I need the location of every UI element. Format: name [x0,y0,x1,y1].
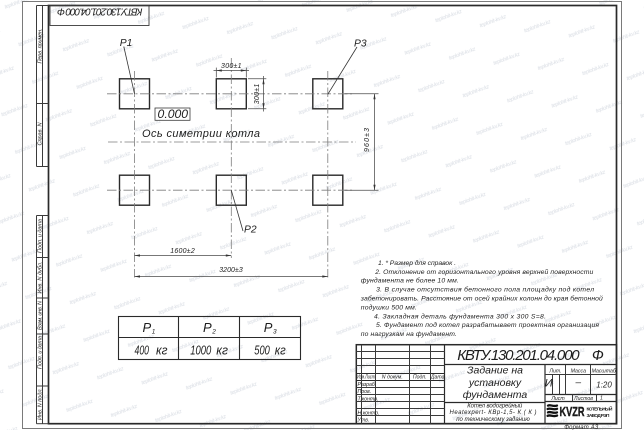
svg-text:Ф: Ф [57,5,65,16]
svg-text:кг: кг [216,343,228,358]
svg-text:1:20: 1:20 [596,381,612,390]
svg-text:P1: P1 [120,38,133,49]
svg-text:Котел водогрейный: Котел водогрейный [467,402,523,409]
svg-text:Подп.: Подп. [413,374,427,380]
svg-text:Подп. и дата: Подп. и дата [38,336,44,369]
svg-text:300±1: 300±1 [221,63,242,70]
svg-text:1: 1 [600,396,603,402]
svg-text:1. * Размер для справок .: 1. * Размер для справок . [378,259,456,267]
svg-text:Инв. N дубл.: Инв. N дубл. [38,262,44,294]
svg-text:Пров.: Пров. [358,389,372,395]
svg-text:3200±3: 3200±3 [219,267,243,274]
svg-text:500: 500 [254,343,270,358]
svg-text:КВТУ.130.201.04.000: КВТУ.130.201.04.000 [65,5,142,16]
svg-text:2. Отклонение от горизонтально: 2. Отклонение от горизонтального уровня … [374,268,593,276]
svg-text:–: – [575,378,582,389]
svg-text:P2: P2 [244,224,257,235]
svg-text:1000: 1000 [190,343,212,358]
svg-text:2: 2 [211,329,216,336]
svg-text:0.000: 0.000 [158,107,189,121]
svg-text:300±1: 300±1 [254,84,261,105]
svg-text:Справ. N: Справ. N [38,122,44,146]
svg-text:Н.контр.: Н.контр. [358,411,380,417]
svg-text:Дата: Дата [430,374,445,380]
svg-text:Изм.Лист: Изм.Лист [357,374,375,380]
svg-text:400: 400 [135,343,150,358]
svg-text:5. Фундамент под котел разраба: 5. Фундамент под котел разрабатывает про… [376,321,599,329]
svg-text:Ось симетрии котла: Ось симетрии котла [142,128,260,140]
svg-text:3: 3 [273,329,277,336]
svg-text:N докум.: N докум. [382,374,403,380]
svg-text:КВТУ.130.201.04.000: КВТУ.130.201.04.000 [457,347,580,364]
svg-text:P: P [143,320,152,335]
svg-text:кг: кг [156,343,168,358]
svg-text:Формат А3: Формат А3 [564,425,599,430]
svg-text:Лит.: Лит. [548,368,561,374]
svg-text:забетонировать. Расстояние от: забетонировать. Расстояние от осей крайн… [360,295,603,303]
svg-text:KVZR: KVZR [560,405,585,419]
svg-text:Инв. N подл.: Инв. N подл. [38,388,44,420]
svg-text:P: P [203,320,212,335]
svg-text:3. В случае отсутствия бетонно: 3. В случае отсутствия бетонного пола пл… [376,286,594,294]
svg-text:И: И [545,378,553,390]
svg-text:подушки 500 мм.: подушки 500 мм. [361,303,417,311]
svg-text:Heatexpert- КВр-1,5- К ( К ): Heatexpert- КВр-1,5- К ( К ) [450,410,537,416]
svg-text:Задание на: Задание на [467,365,523,377]
svg-text:фундамента: фундамента [463,389,528,401]
svg-text:P: P [264,320,273,335]
svg-text:установку: установку [468,377,522,389]
svg-text:Масштаб: Масштаб [592,368,617,374]
svg-text:Т.контр.: Т.контр. [358,396,379,402]
svg-text:960±3: 960±3 [364,128,371,152]
svg-text:кг: кг [275,343,287,358]
svg-text:по техническому заданию: по техническому заданию [456,417,530,423]
svg-text:4. Закладная деталь фундамента: 4. Закладная деталь фундамента 300 х 300… [374,312,546,320]
svg-text:Перв. примен.: Перв. примен. [38,29,44,64]
svg-text:Разраб.: Разраб. [358,382,377,388]
svg-text:Листов: Листов [573,396,593,402]
svg-text:Ф: Ф [592,347,604,364]
svg-text:Масса: Масса [571,368,586,374]
svg-text:1: 1 [152,329,156,336]
svg-text:1600±2: 1600±2 [170,248,195,255]
svg-text:по нагрузкам на фундамент.: по нагрузкам на фундамент. [361,330,457,338]
svg-text:Лист: Лист [550,396,565,402]
svg-text:фундамента не более 10 мм.: фундамента не более 10 мм. [361,277,459,285]
svg-text:Утв.: Утв. [358,418,370,424]
svg-text:P3: P3 [354,38,367,49]
svg-text:Взам. инв. N: Взам. инв. N [38,300,44,330]
svg-text:Подп. и дата: Подп. и дата [38,219,44,253]
svg-text:ЗАВОД РЭП: ЗАВОД РЭП [587,413,611,419]
